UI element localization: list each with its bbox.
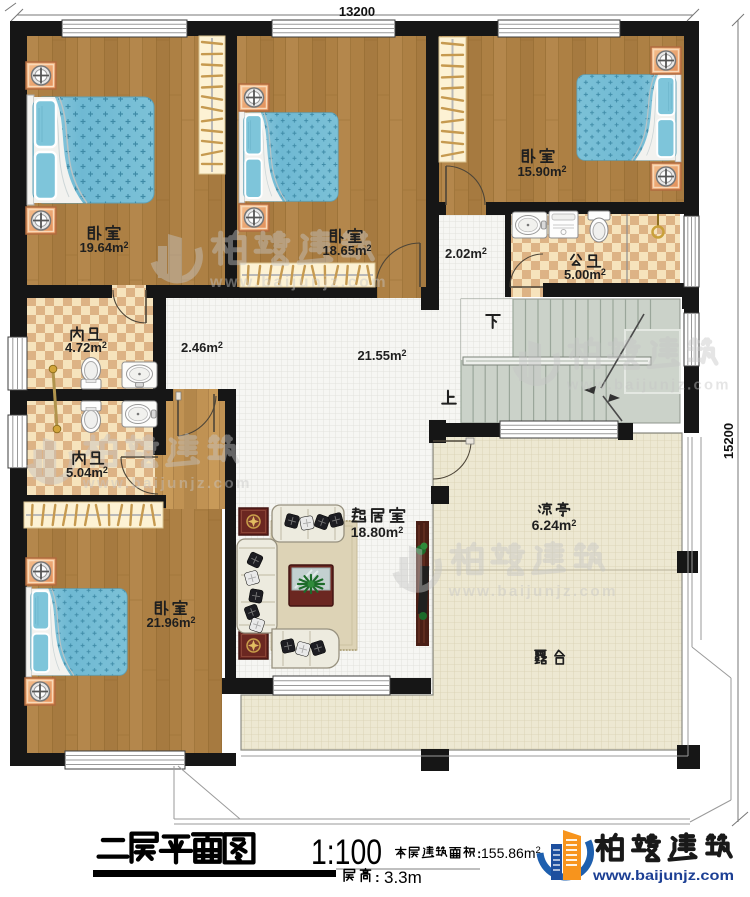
svg-text:6.24m2: 6.24m2	[532, 517, 577, 533]
svg-text:www.baijunjz.com: www.baijunjz.com	[592, 867, 734, 883]
svg-text::: :	[375, 869, 380, 885]
svg-text:2.02m2: 2.02m2	[445, 246, 487, 261]
svg-text:15200: 15200	[721, 423, 736, 459]
svg-text:4.72m2: 4.72m2	[65, 340, 107, 355]
svg-text:3.3m: 3.3m	[384, 868, 422, 887]
svg-text:13200: 13200	[339, 4, 375, 19]
svg-text:18.80m2: 18.80m2	[351, 524, 404, 540]
svg-text:1:100: 1:100	[311, 833, 382, 872]
svg-text:155.86m2: 155.86m2	[481, 845, 541, 861]
svg-text:5.04m2: 5.04m2	[66, 465, 108, 480]
svg-text:www.baijunjz.com: www.baijunjz.com	[209, 274, 388, 291]
svg-text:15.90m2: 15.90m2	[517, 164, 566, 179]
svg-text:18.65m2: 18.65m2	[322, 243, 371, 258]
svg-text:2.46m2: 2.46m2	[181, 340, 223, 355]
svg-text:www.baijunjz.com: www.baijunjz.com	[566, 377, 731, 393]
svg-text:www.baijunjz.com: www.baijunjz.com	[448, 583, 618, 600]
svg-text:19.64m2: 19.64m2	[79, 240, 128, 255]
svg-text:21.55m2: 21.55m2	[357, 348, 406, 363]
svg-text:www.baijunjz.com: www.baijunjz.com	[82, 475, 252, 492]
svg-text:21.96m2: 21.96m2	[146, 615, 195, 630]
svg-text:5.00m2: 5.00m2	[564, 267, 606, 282]
